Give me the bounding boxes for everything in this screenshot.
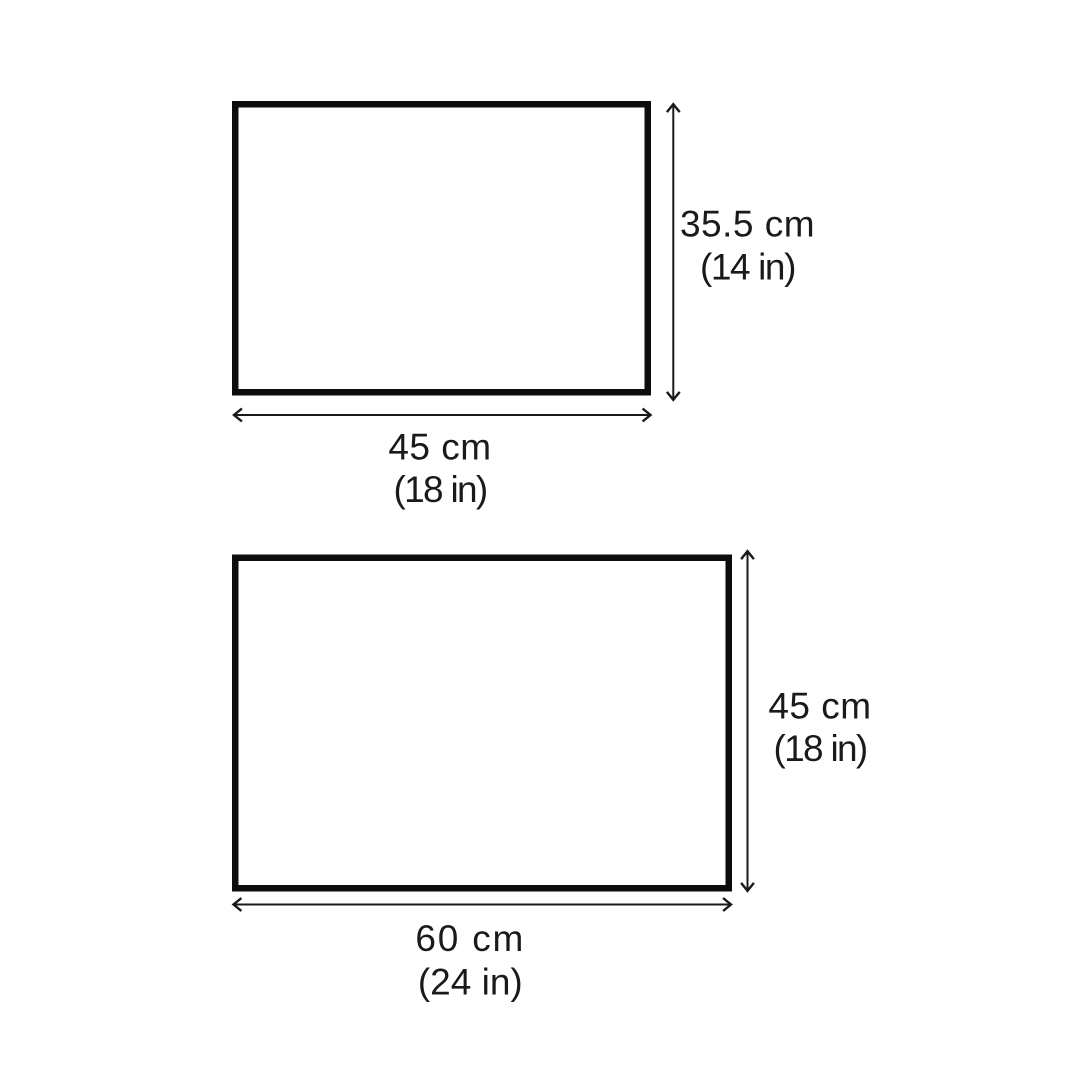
svg-text:45 cm: 45 cm — [388, 426, 491, 467]
svg-text:(24 in): (24 in) — [418, 961, 523, 1002]
svg-text:(18 in): (18 in) — [394, 469, 487, 510]
svg-text:45 cm: 45 cm — [768, 685, 871, 726]
svg-text:35.5 cm: 35.5 cm — [680, 204, 815, 245]
svg-text:(14 in): (14 in) — [700, 247, 795, 288]
svg-text:60 cm: 60 cm — [415, 918, 525, 959]
svg-text:(18 in): (18 in) — [774, 728, 867, 769]
